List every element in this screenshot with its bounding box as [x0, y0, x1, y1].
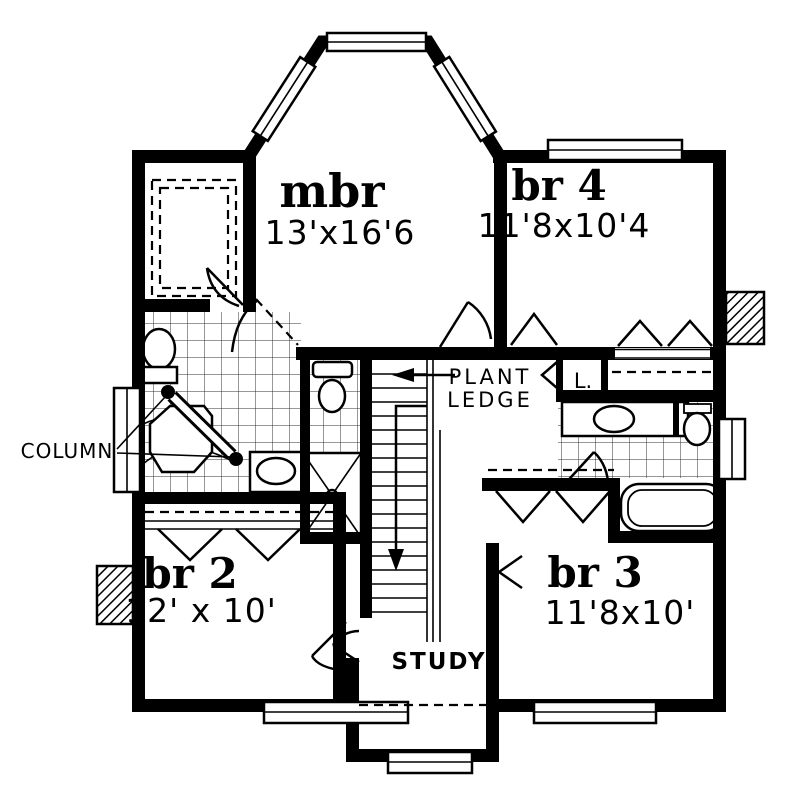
- br4-window: [548, 140, 682, 160]
- shower-pan: [150, 406, 212, 472]
- study-window: [388, 752, 472, 773]
- toilet-tank: [313, 362, 352, 377]
- room-label-br4: br 4: [511, 161, 606, 210]
- room-label-mbr: mbr: [279, 164, 385, 218]
- exterior-wall-top-left: [132, 150, 255, 163]
- room-dims-br4: 11'8x10'4: [478, 206, 651, 245]
- bathtub-inner: [628, 490, 717, 526]
- linen-closet-label: L.: [574, 369, 592, 393]
- study-wall-right: [486, 543, 499, 762]
- column-label: COLUMN: [21, 439, 114, 463]
- br2-window: [264, 702, 408, 723]
- floor-plan-page: mbr 13'x16'6 br 4 11'8x10'4 br 2 12' x 1…: [0, 0, 800, 787]
- vanity-divider: [673, 402, 679, 436]
- mbr-br4-divider: [494, 150, 507, 360]
- linen-wall: [601, 360, 608, 402]
- room-dims-br2: 12' x 10': [125, 591, 277, 630]
- floor-plan-drawing: mbr 13'x16'6 br 4 11'8x10'4 br 2 12' x 1…: [0, 0, 800, 787]
- room-label-br3: br 3: [547, 548, 642, 597]
- stair-wall: [360, 360, 372, 618]
- toilet: [257, 458, 295, 484]
- br3-window: [534, 702, 656, 723]
- toilet: [143, 329, 175, 369]
- bath1-window: [114, 388, 140, 492]
- room-dims-mbr: 13'x16'6: [265, 213, 416, 252]
- closet-wall-bottom: [132, 299, 210, 312]
- plant-ledge-label-2: LEDGE: [447, 388, 533, 412]
- linen-wall: [556, 360, 563, 402]
- column-post: [229, 452, 243, 466]
- br3-closet-wall: [482, 478, 620, 491]
- sink: [594, 406, 634, 432]
- bay-window-top: [327, 33, 426, 51]
- br2-wall-right: [333, 504, 346, 712]
- room-label-study: STUDY: [391, 649, 486, 675]
- chimney-right: [726, 292, 764, 344]
- bath2-bottom-wall: [612, 531, 726, 543]
- bath2-window: [719, 419, 745, 479]
- toilet-tank: [684, 404, 711, 413]
- bath-br2-wall: [132, 492, 346, 504]
- column-post: [161, 385, 175, 399]
- toilet-tank: [142, 367, 177, 383]
- plant-ledge-label-1: PLANT: [449, 365, 532, 389]
- room-dims-br3: 11'8x10': [545, 593, 696, 632]
- toilet: [319, 380, 345, 412]
- toilet: [684, 413, 710, 445]
- closet-wall: [243, 150, 256, 312]
